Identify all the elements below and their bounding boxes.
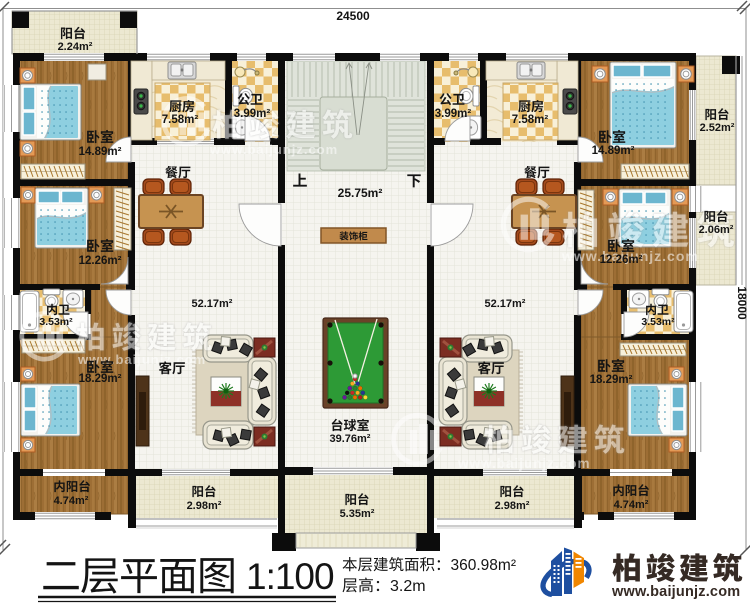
svg-text:7.58m²: 7.58m² — [162, 111, 199, 127]
svg-text:7.58m²: 7.58m² — [512, 111, 549, 127]
svg-text:39.76m²: 39.76m² — [330, 430, 371, 446]
svg-text:52.17m²: 52.17m² — [192, 295, 233, 311]
svg-text:14.89m²: 14.89m² — [592, 142, 635, 158]
svg-text:www.baijunjz.com: www.baijunjz.com — [611, 584, 740, 600]
svg-text:二层平面图: 二层平面图 — [41, 544, 236, 602]
svg-text:2.52m²: 2.52m² — [700, 119, 735, 135]
svg-text:24500: 24500 — [336, 7, 370, 24]
svg-text:2.24m²: 2.24m² — [58, 38, 93, 54]
svg-text:2.98m²: 2.98m² — [187, 497, 222, 513]
svg-text:52.17m²: 52.17m² — [485, 295, 526, 311]
svg-text:25.75m²: 25.75m² — [338, 184, 383, 201]
svg-text:2.98m²: 2.98m² — [495, 497, 530, 513]
svg-text:18.29m²: 18.29m² — [79, 370, 122, 386]
svg-text:1:100: 1:100 — [246, 556, 334, 597]
svg-text:5.35m²: 5.35m² — [340, 505, 375, 521]
svg-text:www.baijunjz.com: www.baijunjz.com — [209, 139, 338, 158]
svg-text:客厅: 客厅 — [478, 357, 505, 377]
svg-text:3.99m²: 3.99m² — [435, 105, 472, 121]
svg-text:12.26m²: 12.26m² — [600, 251, 643, 267]
svg-text:下: 下 — [406, 170, 421, 191]
svg-text:3.53m²: 3.53m² — [641, 314, 675, 329]
svg-text:4.74m²: 4.74m² — [54, 492, 89, 508]
svg-text:餐厅: 餐厅 — [165, 162, 191, 181]
svg-text:4.74m²: 4.74m² — [614, 496, 649, 512]
svg-text:上: 上 — [292, 170, 307, 191]
svg-text:14.89m²: 14.89m² — [79, 143, 122, 159]
svg-text:3.99m²: 3.99m² — [234, 105, 271, 121]
svg-text:2.06m²: 2.06m² — [699, 221, 734, 237]
svg-text:12.26m²: 12.26m² — [79, 252, 122, 268]
svg-text:装饰柜: 装饰柜 — [339, 229, 368, 243]
svg-text:18000: 18000 — [734, 286, 750, 320]
svg-text:层高：3.2m: 层高：3.2m — [342, 572, 426, 596]
svg-text:18.29m²: 18.29m² — [590, 371, 633, 387]
svg-text:www.baijunjz.com: www.baijunjz.com — [457, 452, 591, 472]
svg-text:柏竣建筑: 柏竣建筑 — [612, 544, 746, 588]
svg-text:客厅: 客厅 — [159, 357, 186, 377]
svg-text:餐厅: 餐厅 — [524, 162, 550, 181]
svg-text:3.53m²: 3.53m² — [39, 314, 73, 329]
